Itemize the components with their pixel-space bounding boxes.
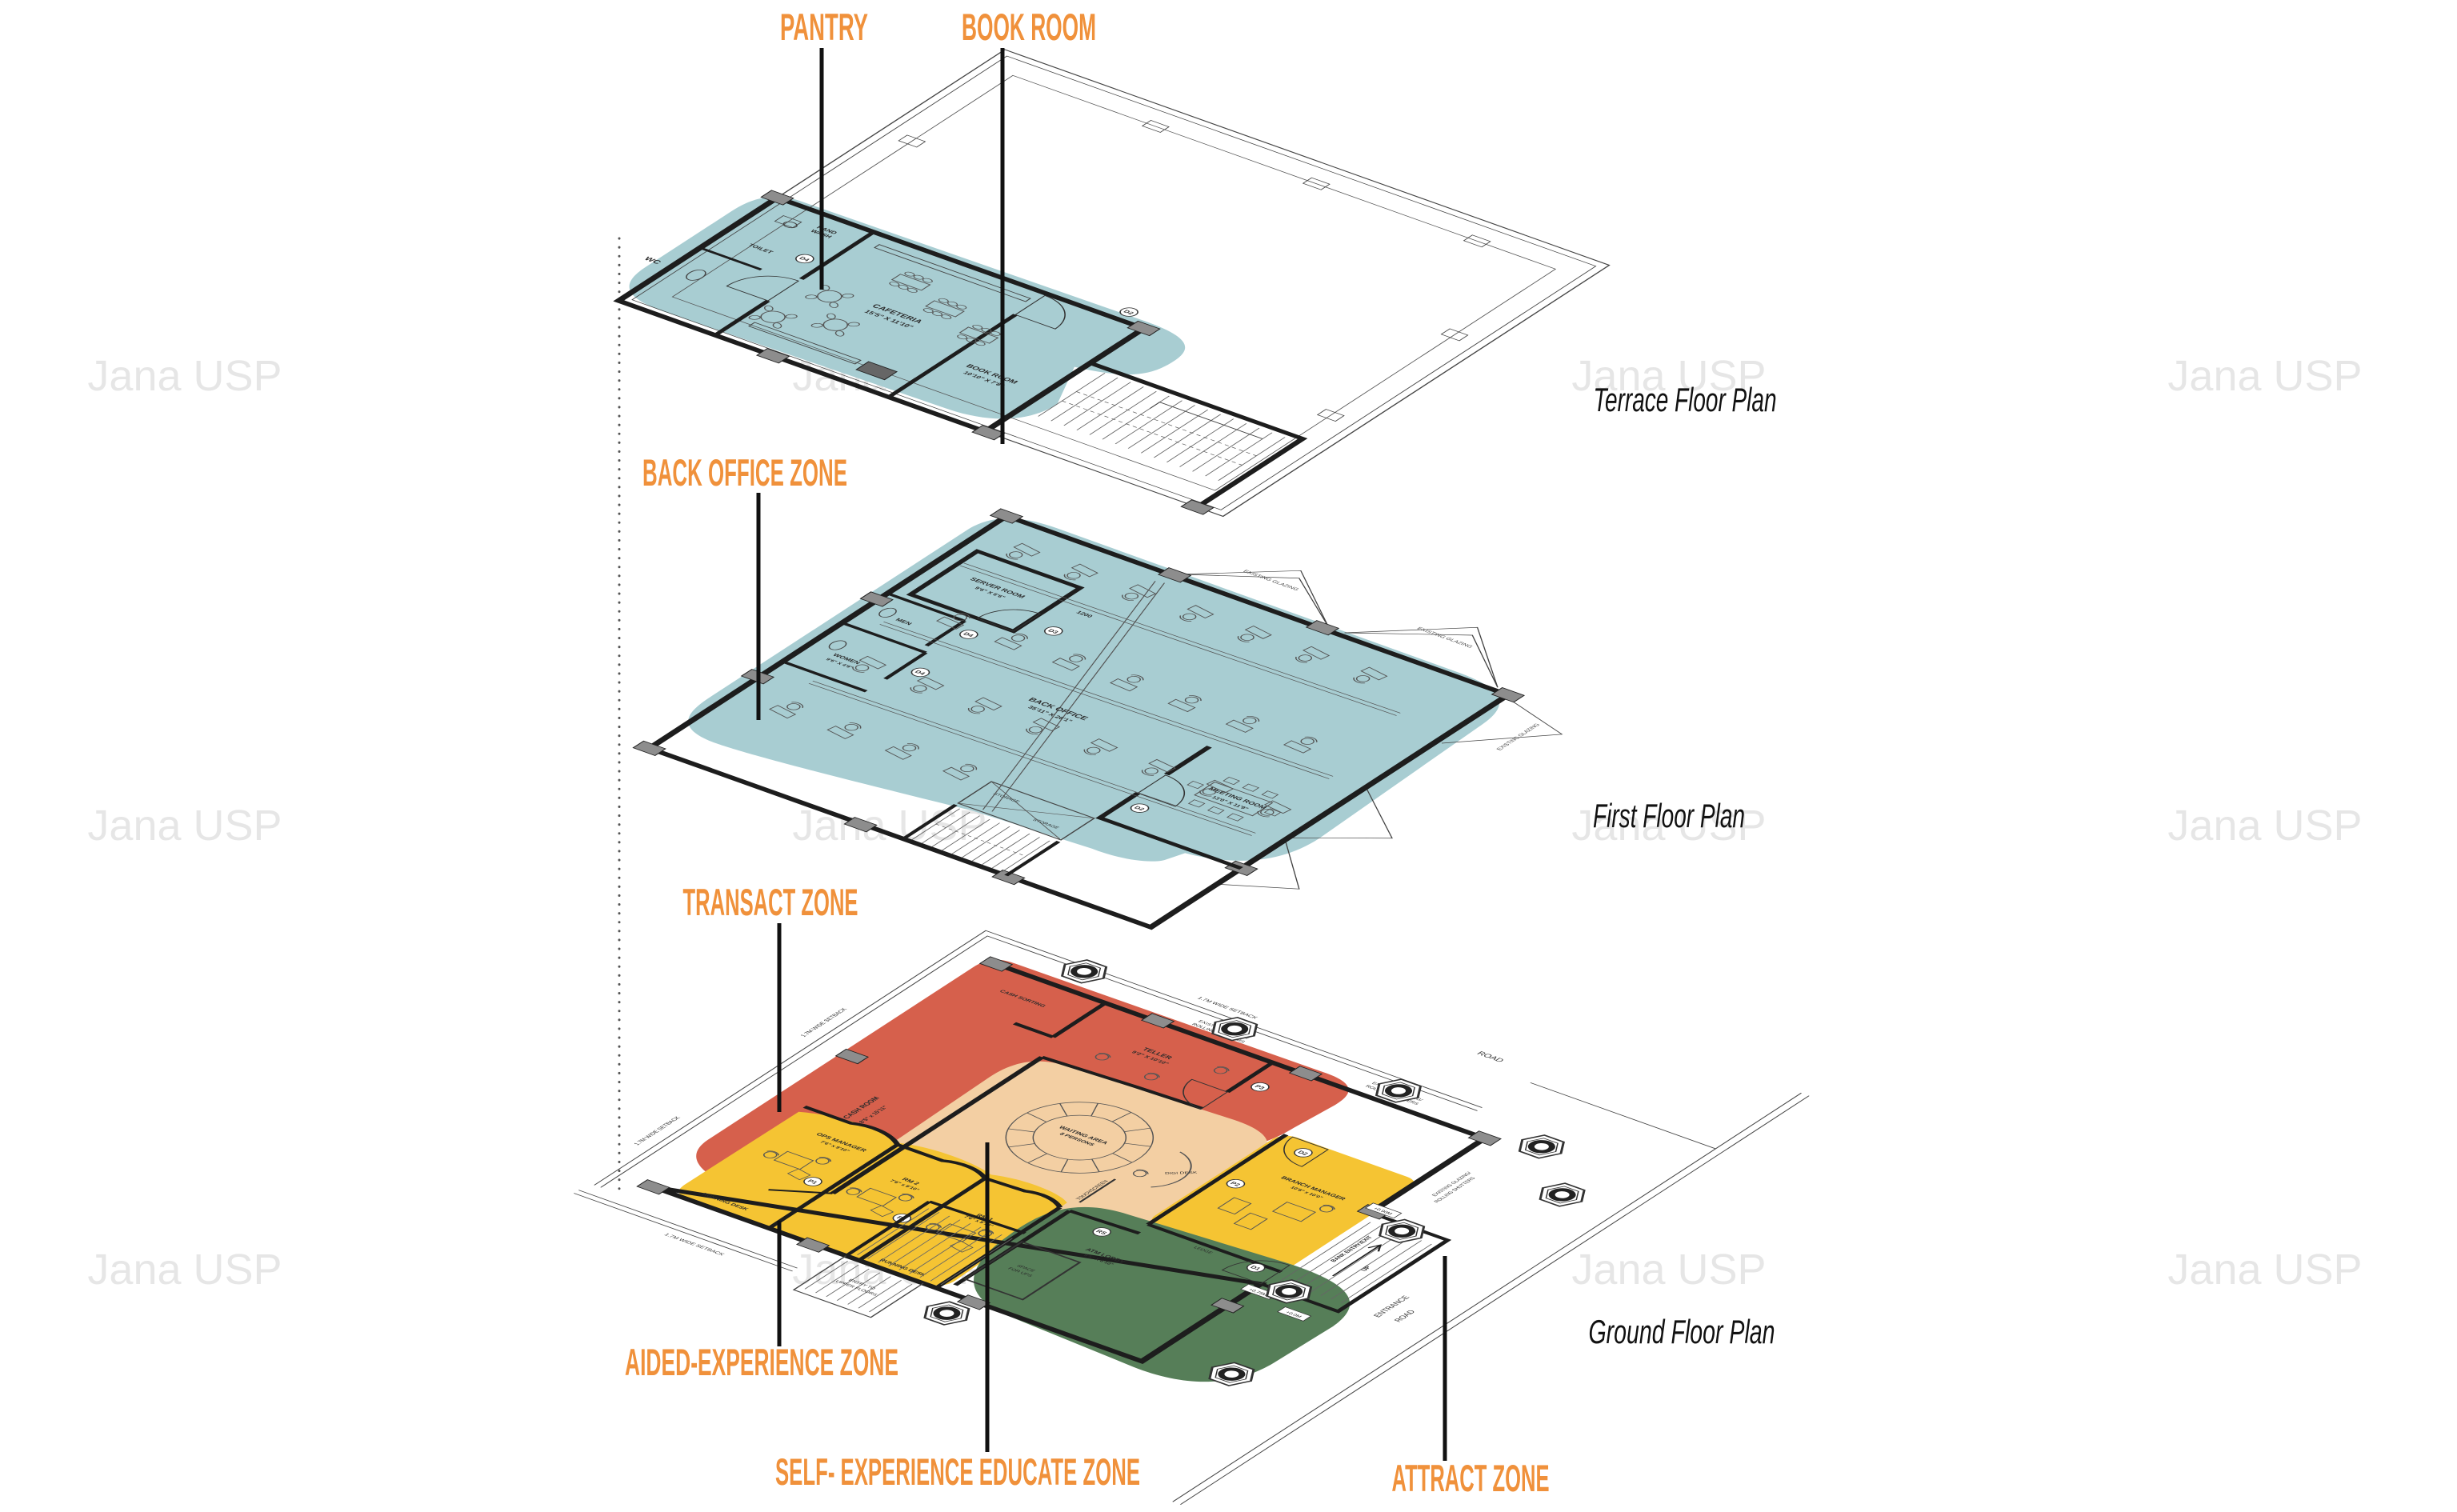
svg-text:Ground Floor Plan: Ground Floor Plan — [1589, 1313, 1775, 1350]
svg-text:Jana USP: Jana USP — [87, 352, 282, 400]
svg-text:ATTRACT ZONE: ATTRACT ZONE — [1392, 1457, 1550, 1499]
svg-text:Jana USP: Jana USP — [1571, 1246, 1766, 1294]
svg-text:Jana USP: Jana USP — [87, 1246, 282, 1294]
svg-text:Jana USP: Jana USP — [2167, 1246, 2362, 1294]
svg-text:BACK OFFICE ZONE: BACK OFFICE ZONE — [642, 451, 847, 494]
svg-text:BOOK ROOM: BOOK ROOM — [962, 6, 1096, 48]
svg-text:SELF- EXPERIENCE EDUCATE ZONE: SELF- EXPERIENCE EDUCATE ZONE — [775, 1450, 1140, 1493]
svg-text:First Floor Plan: First Floor Plan — [1593, 797, 1745, 834]
svg-text:Jana USP: Jana USP — [2167, 802, 2362, 850]
svg-text:AIDED-EXPERIENCE ZONE: AIDED-EXPERIENCE ZONE — [625, 1341, 898, 1383]
svg-text:PANTRY: PANTRY — [780, 6, 868, 48]
svg-text:TRANSACT ZONE: TRANSACT ZONE — [683, 881, 858, 923]
svg-text:Terrace Floor Plan: Terrace Floor Plan — [1594, 381, 1777, 418]
svg-text:Jana USP: Jana USP — [87, 802, 282, 850]
svg-text:Jana USP: Jana USP — [2167, 352, 2362, 400]
